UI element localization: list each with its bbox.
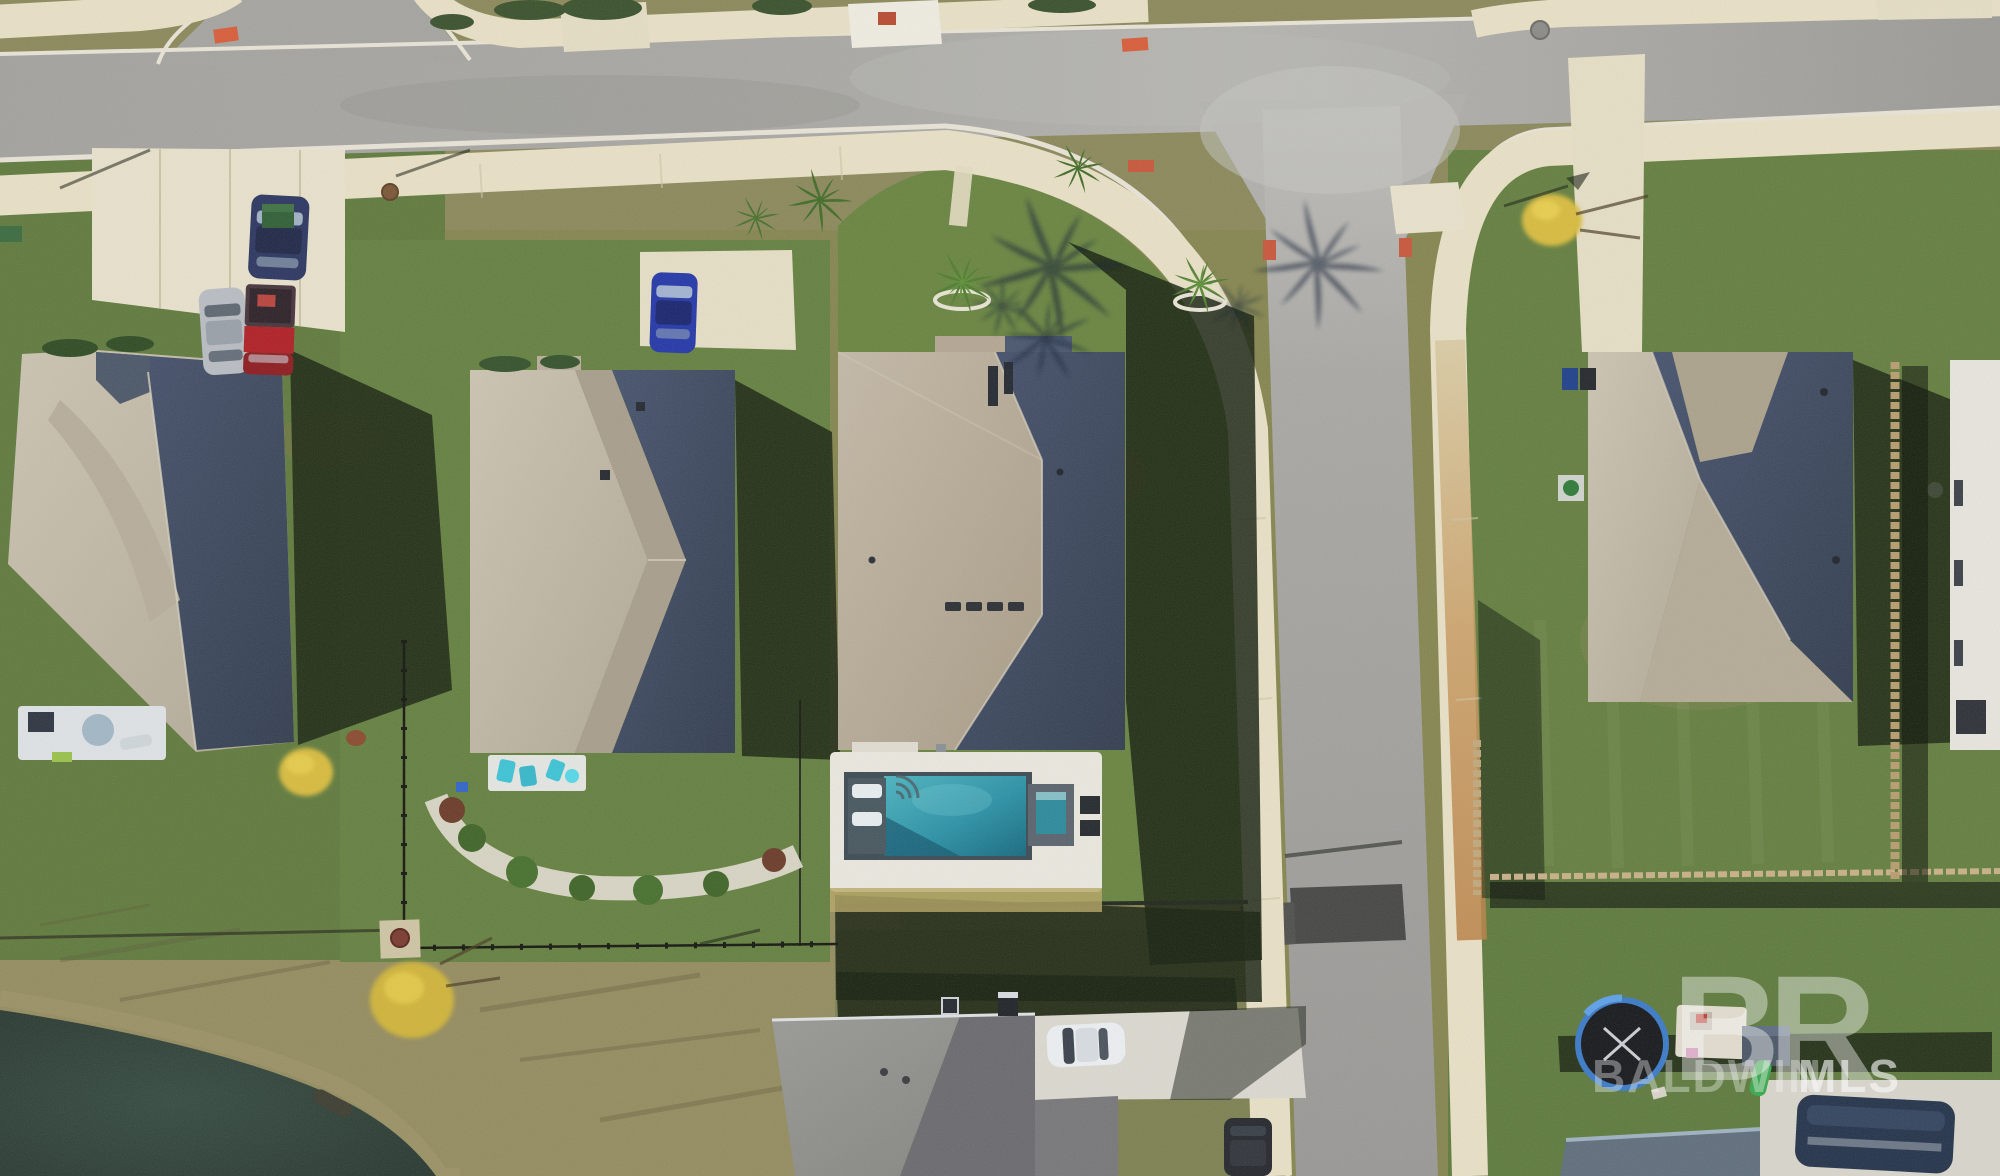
photo-grain-overlay [0,0,2000,1176]
aerial-photo: BR BALDWIN MLS [0,0,2000,1176]
aerial-photo-stage: BR BALDWIN MLS [0,0,2000,1176]
